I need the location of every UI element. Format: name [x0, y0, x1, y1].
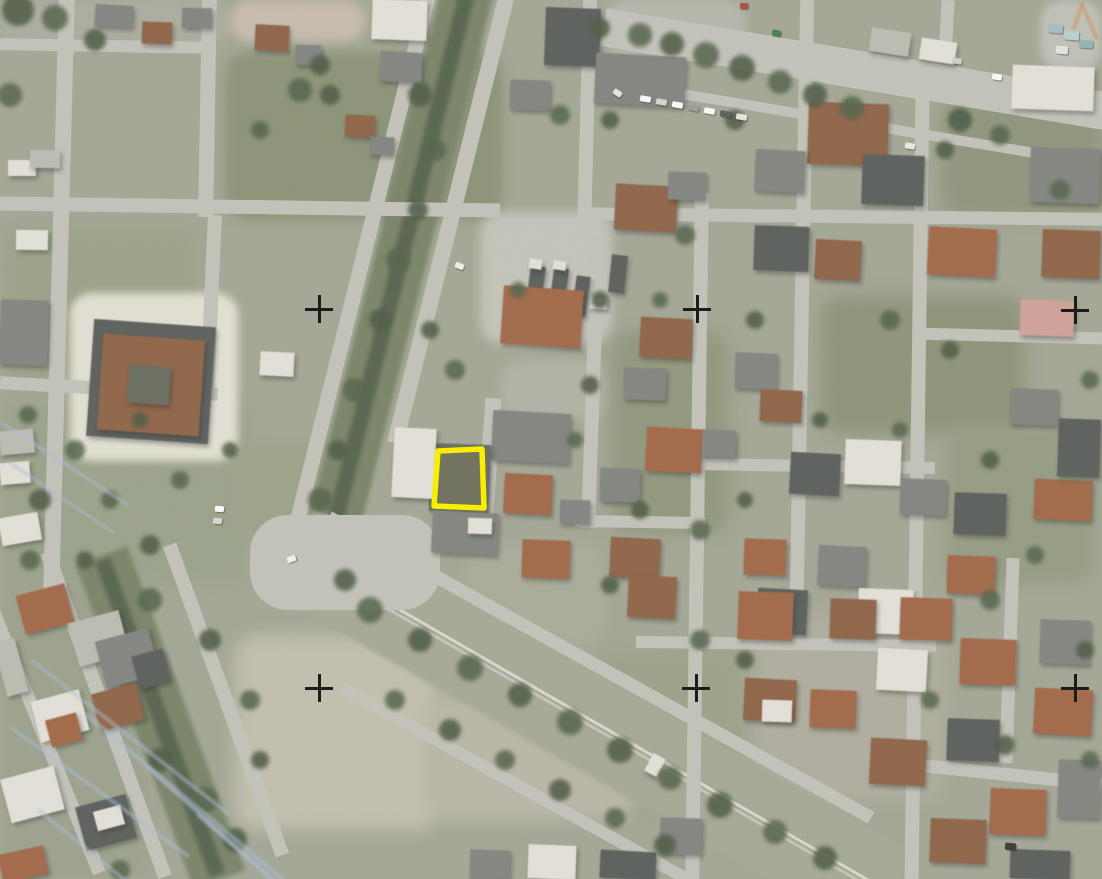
- fiducial-cross-icon: [1061, 296, 1089, 324]
- fiducial-cross-icon: [682, 674, 710, 702]
- layer-fiducial-crosses: [0, 0, 1102, 879]
- fiducial-cross-icon: [1061, 674, 1089, 702]
- fiducial-cross-icon: [683, 295, 711, 323]
- fiducial-cross-icon: [305, 674, 333, 702]
- aerial-map-canvas[interactable]: [0, 0, 1102, 879]
- fiducial-cross-icon: [305, 295, 333, 323]
